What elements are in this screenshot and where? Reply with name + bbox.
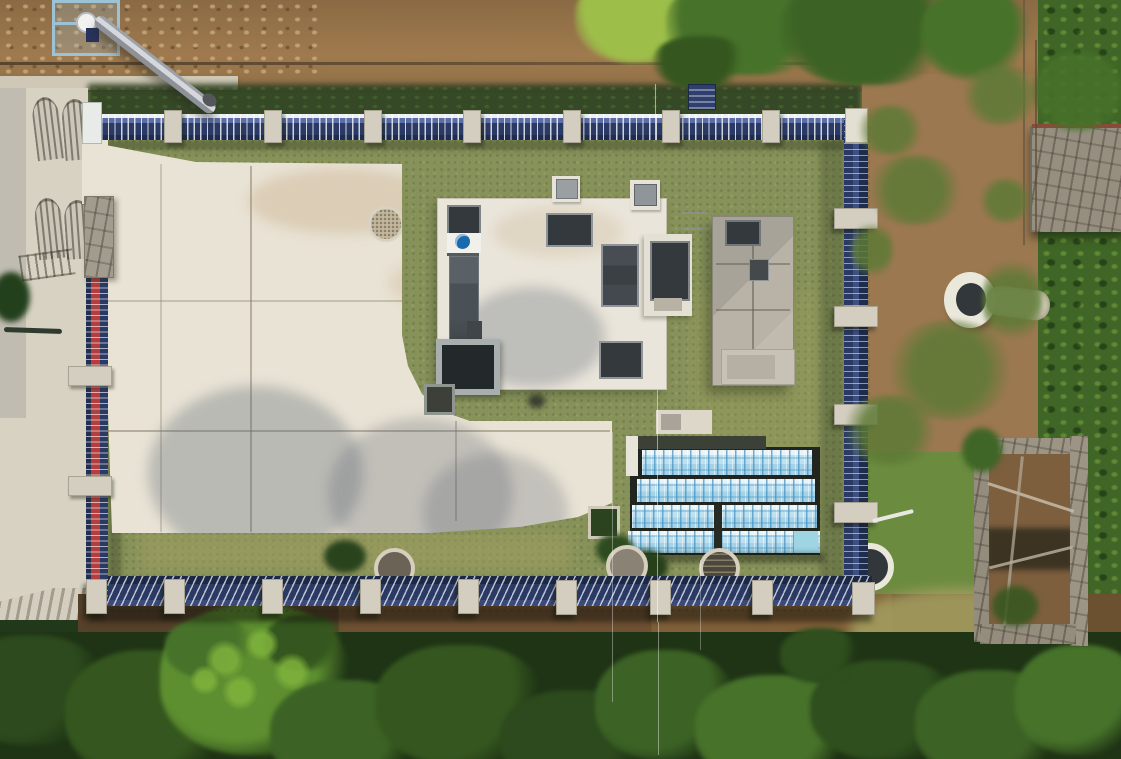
equip-box (749, 259, 769, 281)
fence-shadow-bottom (88, 604, 872, 622)
tarp-row-1 (642, 450, 812, 475)
navy-box (86, 28, 99, 42)
fence-west-redblue (86, 272, 108, 602)
roof-hatch (725, 220, 761, 246)
tree-trunk-line2 (1035, 40, 1037, 235)
forest-base (0, 632, 1121, 759)
ruin-wall-right (1070, 436, 1088, 646)
vent-unit-1 (556, 179, 578, 199)
treatment-building-roof (437, 198, 667, 390)
ruin-wall-bottom (980, 624, 1076, 644)
tank-hatch-top (546, 213, 593, 247)
side-panel (650, 241, 690, 301)
gate-pillar-stone (84, 196, 114, 278)
equipment-building (712, 216, 794, 386)
gate-post-white (82, 102, 102, 144)
blue-cart (688, 84, 716, 110)
fence-north (88, 114, 862, 140)
fence-south (88, 576, 872, 606)
fence-east (844, 118, 868, 606)
tarp-row-3 (632, 505, 817, 528)
pad-joint-h2 (102, 300, 402, 302)
vent-pad-2 (630, 180, 660, 210)
pad-manhole (368, 206, 404, 242)
small-grey-unit (661, 414, 681, 430)
aerial-photo-canvas (0, 0, 1121, 759)
walkway-shade (0, 88, 26, 418)
tarp-row-2 (637, 479, 815, 502)
tree-trunk-line (1023, 0, 1025, 245)
tank-hatch-bottom (599, 341, 643, 379)
tarp-building (626, 436, 824, 560)
tarp-cyan-patch (794, 531, 818, 553)
utility-logo (455, 234, 470, 249)
tarp-west-wall (626, 436, 638, 476)
small-white-slab (656, 410, 712, 434)
stone-retaining-wall (1030, 126, 1121, 232)
tank-hatch-right (601, 244, 639, 307)
fence-shadow-top (88, 140, 860, 150)
square-manhole (424, 384, 455, 415)
outside-well-center (956, 283, 986, 316)
dark-spot-on-grass (528, 394, 545, 408)
ruin-overgrowth-2 (992, 586, 1038, 626)
platform-slab (727, 355, 775, 379)
tarp-mid-gap (714, 505, 722, 553)
side-step (654, 298, 682, 311)
bush-1 (324, 540, 366, 573)
ruined-hut (972, 436, 1090, 648)
tarp-roof-strip (638, 436, 766, 449)
vines-over-wall (1034, 52, 1121, 130)
inlet-headbox (447, 205, 481, 235)
rack-frame (682, 212, 708, 230)
vent-pad-1 (552, 176, 580, 202)
vent-unit-2 (634, 184, 657, 206)
side-pad (644, 234, 692, 316)
ruin-overgrowth-1 (962, 428, 1002, 472)
old-fence-line (0, 62, 860, 65)
equip-joint-h2 (716, 309, 790, 311)
